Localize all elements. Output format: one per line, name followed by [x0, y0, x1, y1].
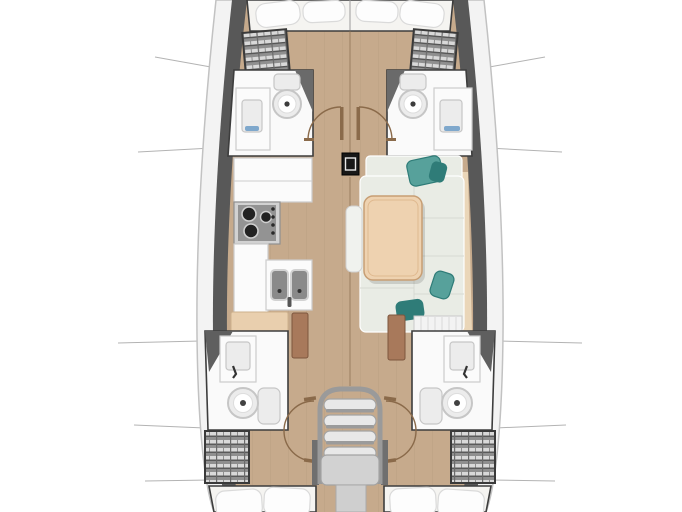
- toilet-tank: [420, 388, 442, 424]
- berth-pillow: [355, 0, 398, 23]
- sink-basin: [271, 270, 288, 300]
- step-shadow: [326, 425, 374, 429]
- door-handle: [386, 138, 396, 141]
- sink-drain: [278, 289, 282, 293]
- berth-pillow: [255, 0, 302, 29]
- bench-seat: [346, 206, 362, 272]
- locker-top: [231, 312, 288, 332]
- aft-cabin-port: [209, 486, 316, 512]
- toilet-tank: [274, 74, 300, 90]
- washbasin: [450, 342, 474, 370]
- burner: [261, 212, 272, 223]
- toilet-drain: [284, 101, 289, 106]
- toilet-drain: [454, 400, 460, 406]
- faucet: [288, 297, 292, 307]
- open-door-port: [292, 313, 308, 358]
- wardrobe-starboard: [451, 431, 495, 483]
- sink-drain: [298, 289, 302, 293]
- stove-knob: [271, 215, 275, 219]
- mast-post: [342, 153, 359, 175]
- engine-box: [321, 455, 379, 485]
- burner: [244, 224, 258, 238]
- burner: [242, 207, 256, 221]
- stove-knob: [271, 207, 275, 211]
- sink-basin: [291, 270, 308, 300]
- berth-pillow: [399, 0, 446, 29]
- berth-pillow: [437, 488, 485, 512]
- aft-head-starboard: [412, 331, 495, 430]
- aft-cabin-starboard: [384, 486, 491, 512]
- toilet-drain: [240, 400, 246, 406]
- open-door-starboard: [388, 315, 405, 360]
- berth-pillow: [215, 488, 263, 512]
- berth-pillow: [303, 0, 346, 23]
- forward-cabin: [247, 0, 453, 31]
- wardrobe-port: [205, 431, 249, 483]
- berth-pillow: [263, 487, 310, 512]
- lower-counter: [234, 244, 268, 318]
- step-shadow: [326, 441, 374, 445]
- stove-knob: [271, 223, 275, 227]
- toilet-tank: [258, 388, 280, 424]
- washbasin: [226, 342, 250, 370]
- step-shadow: [326, 409, 374, 413]
- toilet-tank: [400, 74, 426, 90]
- fridge-counter: [234, 158, 312, 202]
- soap-tray: [444, 126, 460, 131]
- dining-table: [364, 196, 422, 280]
- salon: [346, 155, 472, 332]
- stove-knob: [271, 231, 275, 235]
- aft-head-port: [205, 331, 288, 430]
- shelf-locker-starboard: [410, 29, 457, 75]
- door-panel: [340, 107, 344, 140]
- door-handle: [304, 138, 314, 141]
- floor-plan-canvas: [0, 0, 682, 512]
- soap-tray: [245, 126, 259, 131]
- yacht-floor-plan: [0, 0, 682, 512]
- toilet-drain: [410, 101, 415, 106]
- engine-column: [336, 485, 366, 512]
- berth-pillow: [389, 487, 436, 512]
- door-panel: [357, 107, 361, 140]
- shelf-locker-port: [242, 29, 289, 75]
